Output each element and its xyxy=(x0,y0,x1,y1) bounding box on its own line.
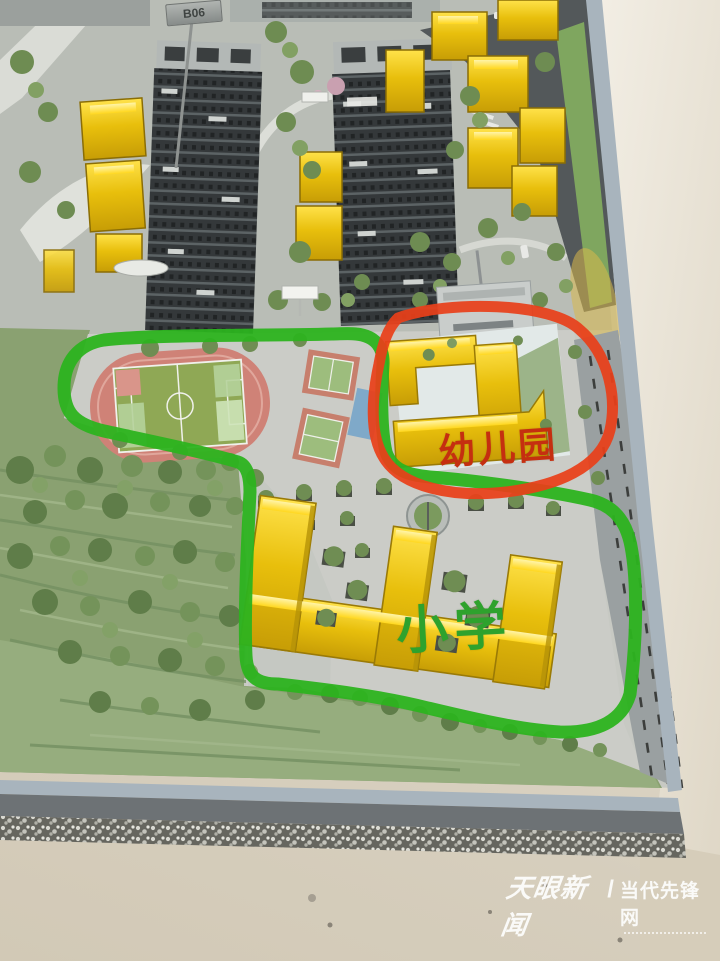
scene-svg xyxy=(0,0,720,961)
watermark-rule xyxy=(624,932,707,934)
primary-school-label: 小学 xyxy=(394,583,514,664)
watermark: 天眼新闻 / 当代先锋网 xyxy=(504,868,710,942)
blossom-tree xyxy=(327,77,345,95)
model-photo: B06 幼儿园 小学 天眼新闻 / 当代先锋网 xyxy=(0,0,720,961)
watermark-separator-icon: / xyxy=(607,876,614,904)
tower-1 xyxy=(145,40,263,334)
kindergarten-label: 幼儿园 xyxy=(436,414,559,476)
watermark-brand: 天眼新闻 xyxy=(499,868,607,942)
watermark-site: 当代先锋网 xyxy=(620,876,710,930)
